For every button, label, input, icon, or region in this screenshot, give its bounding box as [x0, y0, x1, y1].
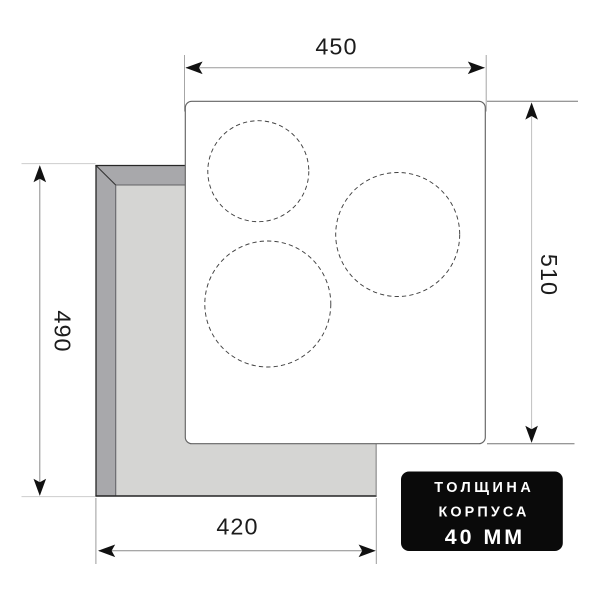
svg-text:ТОЛЩИНА: ТОЛЩИНА — [434, 480, 534, 496]
svg-text:40 ММ: 40 ММ — [445, 525, 525, 549]
svg-text:КОРПУСА: КОРПУСА — [439, 504, 530, 520]
svg-text:450: 450 — [315, 33, 357, 59]
svg-text:420: 420 — [216, 514, 258, 540]
svg-text:510: 510 — [536, 254, 562, 296]
svg-text:490: 490 — [49, 310, 75, 352]
